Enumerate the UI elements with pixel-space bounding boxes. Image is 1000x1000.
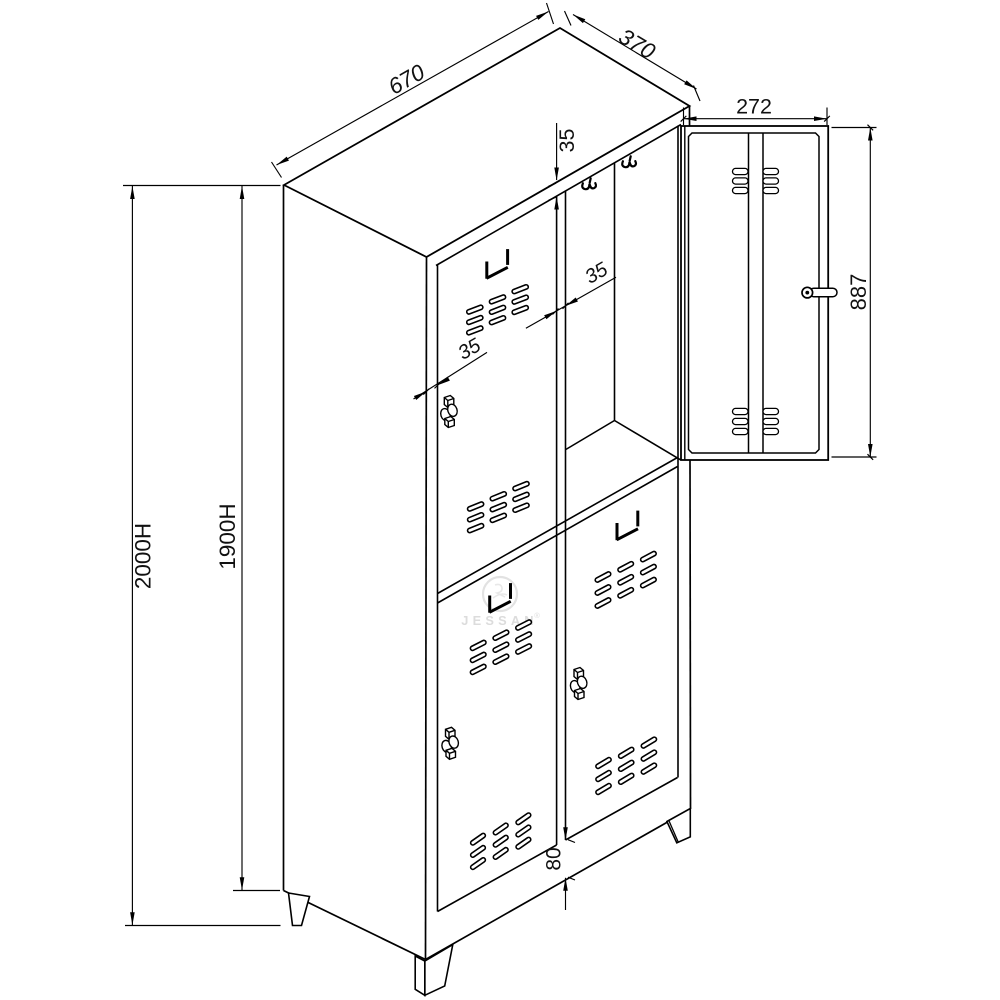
svg-text:2000H: 2000H: [131, 523, 156, 589]
svg-text:887: 887: [846, 274, 871, 311]
svg-text:1900H: 1900H: [215, 503, 240, 569]
svg-text:35: 35: [555, 129, 579, 153]
svg-text:272: 272: [736, 95, 772, 119]
svg-text:®: ®: [534, 611, 540, 620]
svg-text:80: 80: [542, 847, 565, 870]
